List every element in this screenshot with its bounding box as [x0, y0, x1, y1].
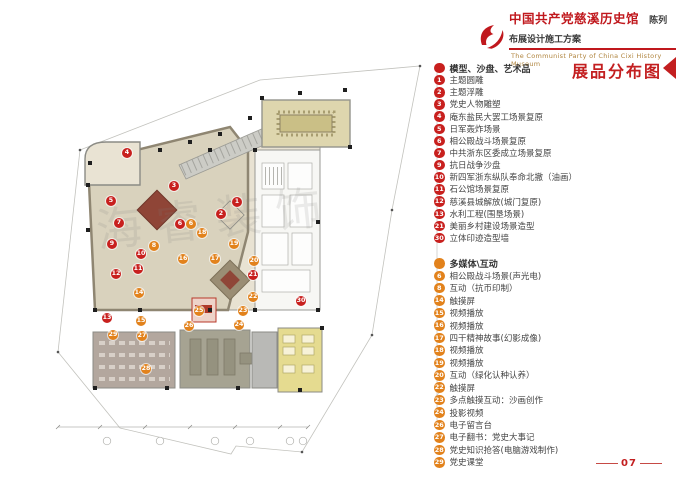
dimension-line-bottom — [56, 425, 310, 445]
legend-item-label: 电子翻书：党史大事记 — [450, 431, 535, 443]
legend-item-number: 12 — [434, 196, 445, 207]
legend-item-3: 3党史人物雕塑 — [434, 98, 672, 110]
legend-item-19: 19视频播放 — [434, 357, 672, 369]
legend-item-number: 19 — [434, 358, 445, 369]
legend-item-label: 党史课堂 — [450, 456, 484, 468]
legend-item-label: 美丽乡村建设场景造型 — [450, 220, 535, 232]
legend-item-7: 7中共浙东区委成立场景复原 — [434, 147, 672, 159]
legend-section-dot — [434, 63, 445, 74]
legend-item-number: 6 — [434, 136, 445, 147]
legend-section-label: 多媒体\互动 — [450, 257, 498, 270]
legend-item-number: 26 — [434, 420, 445, 431]
legend-item-label: 中共浙东区委成立场景复原 — [450, 147, 552, 159]
legend-item-label: 互动（绿化认种认养） — [450, 369, 535, 381]
legend-item-number: 17 — [434, 333, 445, 344]
legend-item-6: 6相公殿战斗场景(声光电) — [434, 270, 672, 282]
legend-list: 模型、沙盘、艺术品1主题圆雕2主题浮雕3党史人物雕塑4庵东盐民大罢工场景复原5日… — [434, 62, 672, 469]
round-corner-room — [85, 142, 140, 185]
legend-item-number: 2 — [434, 87, 445, 98]
legend-item-16: 16视频播放 — [434, 319, 672, 331]
legend-item-15: 15视频播放 — [434, 307, 672, 319]
legend-item-number: 30 — [434, 233, 445, 244]
page: 海睿装饰 12345667891011121314151617181920212… — [0, 0, 676, 477]
legend-item-number: 6 — [434, 271, 445, 282]
legend-section-dot — [434, 258, 445, 269]
legend-item-number: 18 — [434, 345, 445, 356]
legend-item-label: 庵东盐民大罢工场景复原 — [450, 111, 544, 123]
legend-item-13: 13水利工程(围垦场景) — [434, 208, 672, 220]
legend-item-label: 视频播放 — [450, 344, 484, 356]
legend-item-number: 11 — [434, 184, 445, 195]
legend-item-label: 党史人物雕塑 — [450, 98, 501, 110]
legend-item-2: 2主题浮雕 — [434, 86, 672, 98]
legend-item-number: 1 — [434, 75, 445, 86]
legend-item-number: 3 — [434, 99, 445, 110]
legend-item-label: 触摸屏 — [450, 382, 476, 394]
legend-item-number: 13 — [434, 209, 445, 220]
legend-item-26: 26电子留言台 — [434, 419, 672, 431]
legend-item-label: 抗日战争沙盘 — [450, 159, 501, 171]
legend-item-number: 23 — [434, 395, 445, 406]
legend-item-12: 12慈溪县城解放(城门复原) — [434, 196, 672, 208]
legend-item-label: 多点触摸互动：沙画创作 — [450, 394, 544, 406]
legend-item-number: 15 — [434, 308, 445, 319]
legend-item-23: 23多点触摸互动：沙画创作 — [434, 394, 672, 406]
legend-item-6: 6相公殿战斗场景复原 — [434, 135, 672, 147]
legend-item-label: 视频播放 — [450, 357, 484, 369]
legend-section-label: 模型、沙盘、艺术品 — [450, 62, 531, 75]
page-number-rule-left — [596, 463, 618, 465]
legend-item-label: 四干精神故事(幻影成像) — [450, 332, 542, 344]
page-number: 07 — [621, 458, 637, 469]
legend-item-number: 28 — [434, 445, 445, 456]
legend-item-number: 29 — [434, 457, 445, 468]
legend-item-label: 主题圆雕 — [450, 74, 484, 86]
legend-item-label: 触摸屏 — [450, 295, 476, 307]
legend-item-number: 16 — [434, 320, 445, 331]
legend-section-header: 模型、沙盘、艺术品 — [434, 62, 672, 74]
legend-item-number: 4 — [434, 111, 445, 122]
party-emblem-logo-icon — [478, 24, 506, 50]
legend-item-label: 日军轰炸场景 — [450, 123, 501, 135]
legend-item-label: 相公殿战斗场景复原 — [450, 135, 527, 147]
legend-item-24: 24投影视频 — [434, 406, 672, 418]
legend-item-9: 9抗日战争沙盘 — [434, 159, 672, 171]
legend-item-22: 22触摸屏 — [434, 381, 672, 393]
legend-item-8: 8互动（抗币印制） — [434, 282, 672, 294]
legend-item-number: 20 — [434, 370, 445, 381]
legend-item-label: 石公馆场景复原 — [450, 183, 510, 195]
legend-item-number: 27 — [434, 432, 445, 443]
legend-item-number: 21 — [434, 221, 445, 232]
legend-item-17: 17四干精神故事(幻影成像) — [434, 332, 672, 344]
legend-item-11: 11石公馆场景复原 — [434, 183, 672, 195]
legend-item-number: 5 — [434, 124, 445, 135]
legend-item-4: 4庵东盐民大罢工场景复原 — [434, 111, 672, 123]
legend-item-label: 电子留言台 — [450, 419, 493, 431]
legend-item-label: 视频播放 — [450, 320, 484, 332]
page-number-block: 07 — [596, 458, 662, 469]
museum-title: 中国共产党慈溪历史馆 — [509, 11, 639, 26]
legend-item-label: 相公殿战斗场景(声光电) — [450, 270, 542, 282]
legend-item-1: 1主题圆雕 — [434, 74, 672, 86]
legend-item-number: 24 — [434, 407, 445, 418]
page-number-rule-right — [640, 463, 662, 465]
legend-item-20: 20互动（绿化认种认养） — [434, 369, 672, 381]
legend-item-label: 水利工程(围垦场景) — [450, 208, 525, 220]
legend-item-number: 7 — [434, 148, 445, 159]
legend-item-label: 互动（抗币印制） — [450, 282, 518, 294]
legend-item-number: 8 — [434, 283, 445, 294]
legend-item-30: 30立体印迹造型墙 — [434, 232, 672, 244]
legend-item-number: 22 — [434, 382, 445, 393]
legend-item-label: 慈溪县城解放(城门复原) — [450, 196, 542, 208]
legend-item-14: 14触摸屏 — [434, 294, 672, 306]
legend-item-28: 28党史知识抢答(电脑游戏制作) — [434, 444, 672, 456]
legend-item-number: 14 — [434, 295, 445, 306]
legend-item-number: 9 — [434, 160, 445, 171]
legend-section-header: 多媒体\互动 — [434, 257, 672, 269]
legend-item-label: 视频播放 — [450, 307, 484, 319]
gray-room — [252, 332, 277, 388]
conference-table — [280, 115, 332, 132]
legend-item-label: 主题浮雕 — [450, 86, 484, 98]
legend-item-21: 21美丽乡村建设场景造型 — [434, 220, 672, 232]
legend-item-10: 10新四军浙东纵队奉命北撤（油画） — [434, 171, 672, 183]
floor-plan-drawing: 海睿装饰 — [40, 55, 440, 475]
legend-item-label: 立体印迹造型墙 — [450, 232, 510, 244]
legend-item-18: 18视频播放 — [434, 344, 672, 356]
legend-item-label: 党史知识抢答(电脑游戏制作) — [450, 444, 559, 456]
legend-item-label: 投影视频 — [450, 407, 484, 419]
legend-item-5: 5日军轰炸场景 — [434, 123, 672, 135]
legend-item-27: 27电子翻书：党史大事记 — [434, 431, 672, 443]
legend-item-label: 新四军浙东纵队奉命北撤（油画） — [450, 171, 578, 183]
legend-item-number: 10 — [434, 172, 445, 183]
